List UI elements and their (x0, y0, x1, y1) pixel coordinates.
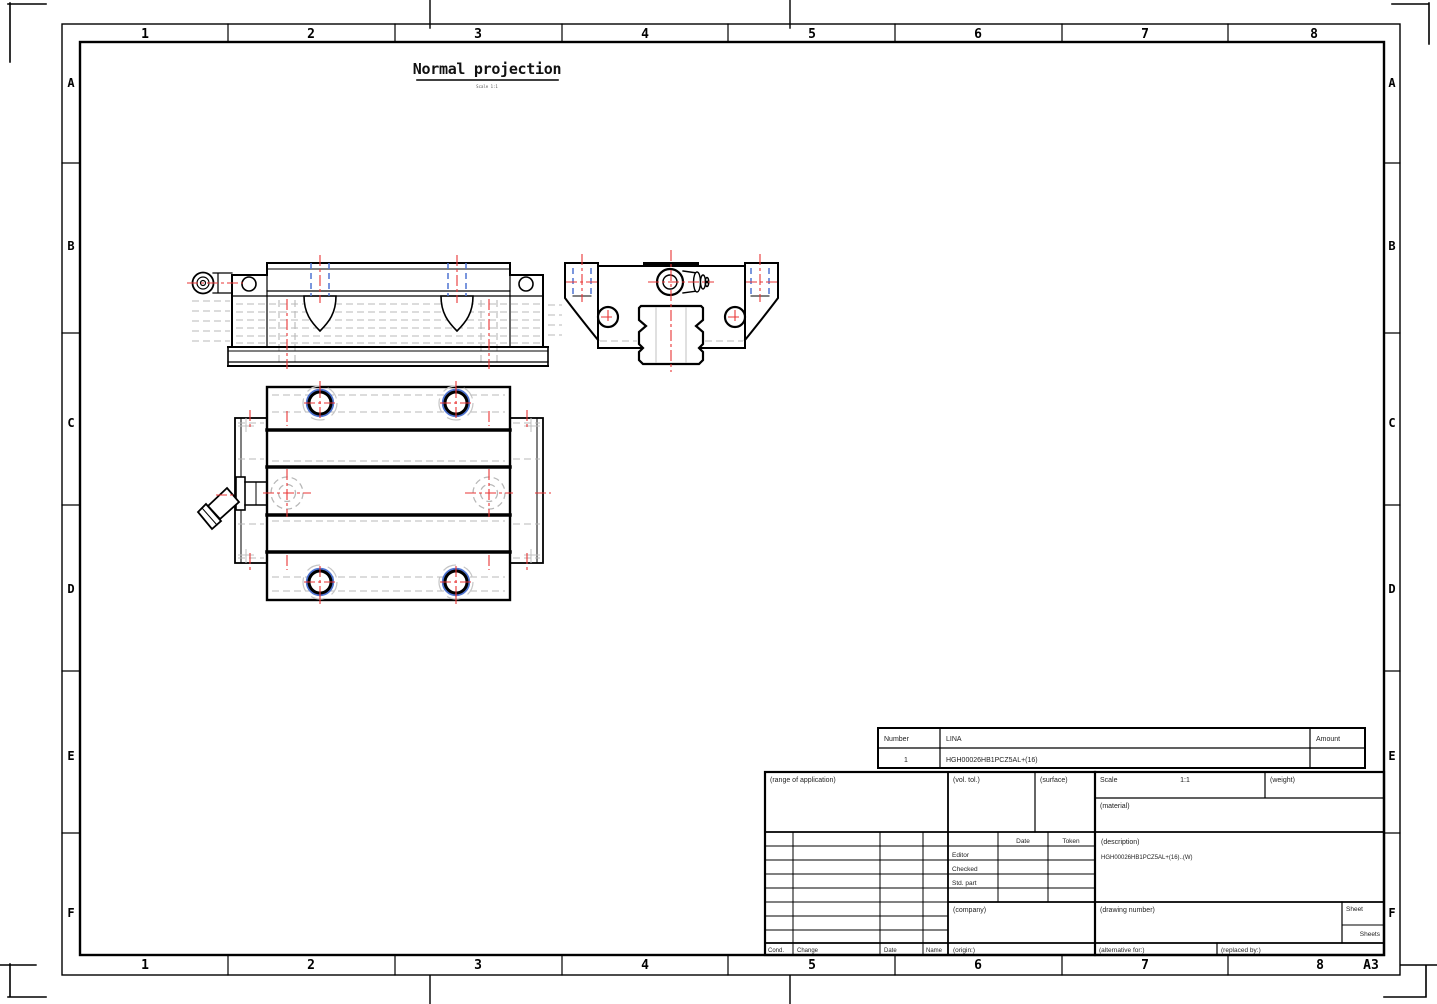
field-material: (material) (1100, 803, 1130, 810)
field-company: (company) (953, 907, 986, 914)
view-title: Normal projection Scale 1:1 (413, 60, 561, 89)
zone-col-top-5: 5 (808, 27, 816, 42)
field-drawing-number: (drawing number) (1100, 907, 1155, 914)
zone-col-bot-8: 8 (1316, 958, 1324, 973)
field-origin: (origin:) (953, 947, 975, 954)
zone-row-left-c: C (67, 416, 74, 430)
title-block: (range of application) (vol. tol.) (surf… (765, 772, 1384, 955)
zone-row-right-d: D (1388, 582, 1395, 596)
field-sheet-label: Sheet (1346, 906, 1363, 913)
zone-col-top-2: 2 (307, 27, 315, 42)
view-caption-text: Scale 1:1 (476, 84, 498, 89)
field-sheets-label: Sheets (1360, 931, 1381, 938)
revision-col-cond: Cond. (768, 948, 784, 954)
field-weight: (weight) (1270, 777, 1295, 784)
field-replaced-by: (replaced by:) (1221, 947, 1261, 954)
zone-row-left-e: E (67, 749, 74, 763)
zone-col-bot-2: 2 (307, 958, 315, 973)
field-description-value: HGH00026HB1PCZ5AL+(16)..(W) (1101, 855, 1193, 861)
parts-col-name: LINA (946, 736, 962, 743)
parts-col-number: Number (884, 736, 910, 743)
end-view (565, 250, 778, 372)
drawing-sheet: 1 2 3 4 5 6 7 8 1 2 3 4 5 6 7 8 A3 A B C… (0, 0, 1437, 1004)
zone-row-left-a: A (67, 76, 75, 90)
zone-row-right-f: F (1388, 906, 1395, 920)
field-surface: (surface) (1040, 777, 1068, 784)
zone-row-left-f: F (67, 906, 74, 920)
zone-col-bot-3: 3 (474, 958, 482, 973)
parts-col-amount: Amount (1316, 736, 1340, 743)
zone-col-top-6: 6 (974, 27, 982, 42)
zone-col-bot-4: 4 (641, 958, 649, 973)
zone-row-right-e: E (1388, 749, 1395, 763)
parts-row-number: 1 (904, 757, 908, 764)
revision-col-date: Date (884, 948, 897, 954)
zone-row-left-d: D (67, 582, 74, 596)
field-description-label: (description) (1101, 839, 1140, 846)
approvals-row-editor: Editor (952, 852, 970, 859)
approvals-row-std-part: Std. part (952, 880, 977, 887)
field-range-of-application: (range of application) (770, 777, 836, 784)
sheet-format-label: A3 (1363, 958, 1379, 973)
approvals-date-header: Date (1016, 838, 1030, 845)
zone-col-top-1: 1 (141, 27, 149, 42)
zone-col-top-4: 4 (641, 27, 649, 42)
zone-row-right-a: A (1388, 76, 1396, 90)
field-alternative-for: (alternative for:) (1099, 947, 1145, 954)
sheet-canvas: 1 2 3 4 5 6 7 8 1 2 3 4 5 6 7 8 A3 A B C… (0, 0, 1437, 1004)
zone-col-bot-1: 1 (141, 958, 149, 973)
zone-row-right-b: B (1388, 239, 1395, 253)
approvals-name-header: Token (1062, 838, 1080, 845)
field-general-tolerance: (vol. tol.) (953, 777, 980, 784)
revision-col-change: Change (797, 948, 819, 954)
field-scale-value: 1:1 (1180, 777, 1190, 784)
revision-col-name: Name (926, 948, 943, 954)
zone-col-top-8: 8 (1310, 27, 1318, 42)
zone-col-bot-5: 5 (808, 958, 816, 973)
view-title-text: Normal projection (413, 60, 561, 78)
front-view (187, 255, 562, 369)
zone-col-bot-6: 6 (974, 958, 982, 973)
zone-col-top-3: 3 (474, 27, 482, 42)
approvals-row-checked: Checked (952, 866, 978, 873)
zone-row-right-c: C (1388, 416, 1395, 430)
parts-row-name: HGH00026HB1PCZ5AL+(16) (946, 757, 1038, 764)
top-view (198, 381, 551, 606)
grease-fitting-top (198, 477, 267, 529)
parts-list: Number LINA Amount 1 HGH00026HB1PCZ5AL+(… (878, 728, 1365, 768)
zone-col-top-7: 7 (1141, 27, 1149, 42)
zone-row-left-b: B (67, 239, 74, 253)
field-scale-label: Scale (1100, 777, 1118, 784)
zone-col-bot-7: 7 (1141, 958, 1149, 973)
